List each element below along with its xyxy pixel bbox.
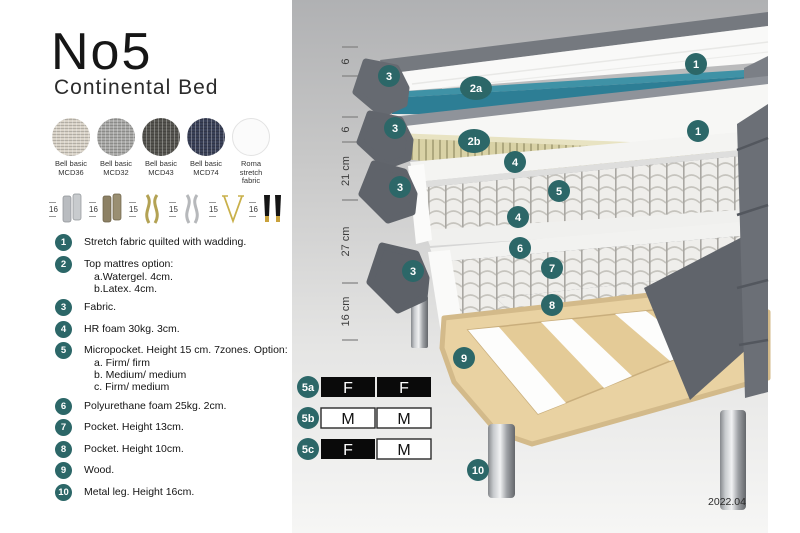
svg-text:3: 3 — [397, 182, 403, 194]
fabric-swatch-image — [97, 118, 135, 156]
fabric-swatch-image — [142, 118, 180, 156]
svg-text:F: F — [399, 380, 409, 397]
leg-option: 15 — [129, 186, 166, 232]
fabric-swatch-label: Bell basicMCD43 — [140, 160, 182, 177]
fabric-swatch: Bell basicMCD32 — [95, 118, 137, 186]
item-number-badge: 6 — [55, 398, 72, 415]
fabric-swatch: Bell basicMCD36 — [50, 118, 92, 186]
firmness-table: 5a F F 5b M M 5c — [297, 376, 431, 460]
bed-diagram: 6 6 21 cm 27 cm 16 cm — [292, 0, 800, 533]
dim-label-27cm: 27 cm — [340, 227, 352, 257]
metal-leg-right — [720, 410, 746, 510]
svg-text:7: 7 — [549, 263, 555, 275]
svg-text:4: 4 — [515, 212, 522, 224]
fabric-swatch-image — [187, 118, 225, 156]
list-item: 1 Stretch fabric quilted with wadding. — [55, 234, 290, 251]
leg-option: 16 — [89, 186, 126, 232]
leg-hairpin-gold-icon — [220, 193, 246, 225]
svg-text:1: 1 — [695, 126, 701, 138]
svg-text:9: 9 — [461, 353, 467, 365]
product-sheet: No5 Continental Bed Bell basicMCD36 Bell… — [0, 0, 800, 533]
page-title: No5 — [51, 22, 152, 82]
leg-option: 16 — [49, 186, 86, 232]
svg-text:3: 3 — [392, 123, 398, 135]
fabric-swatch-label: Bell basicMCD74 — [185, 160, 227, 177]
item-number-badge: 2 — [55, 256, 72, 273]
list-item: 8 Pocket. Height 10cm. — [55, 441, 290, 458]
svg-text:M: M — [397, 442, 410, 459]
leg-cylinder-bronze-icon — [100, 193, 126, 225]
svg-text:2a: 2a — [470, 83, 483, 95]
item-number-badge: 8 — [55, 441, 72, 458]
spec-list: 1 Stretch fabric quilted with wadding. 2… — [55, 234, 290, 505]
metal-leg-front — [488, 424, 515, 498]
svg-text:3: 3 — [386, 71, 392, 83]
info-panel: No5 Continental Bed Bell basicMCD36 Bell… — [0, 0, 292, 533]
dim-label-6b: 6 — [340, 126, 352, 132]
fabric-swatch: Bell basicMCD74 — [185, 118, 227, 186]
list-item: 5 Micropocket. Height 15 cm. 7zones. Opt… — [55, 342, 290, 393]
svg-text:3: 3 — [410, 266, 416, 278]
leg-cylinder-silver-icon — [60, 193, 86, 225]
svg-text:F: F — [343, 380, 353, 397]
svg-text:5c: 5c — [302, 444, 314, 456]
item-number-badge: 4 — [55, 321, 72, 338]
leg-option: 15 — [169, 186, 206, 232]
list-item: 10 Metal leg. Height 16cm. — [55, 484, 290, 501]
list-item: 6 Polyurethane foam 25kg. 2cm. — [55, 398, 290, 415]
svg-text:F: F — [343, 442, 353, 459]
fabric-swatch: Romastretch fabric — [230, 118, 272, 186]
dim-label-21cm: 21 cm — [340, 156, 352, 186]
item-number-badge: 3 — [55, 299, 72, 316]
page-subtitle: Continental Bed — [54, 76, 218, 100]
svg-text:M: M — [341, 411, 354, 428]
item-number-badge: 10 — [55, 484, 72, 501]
leg-twisted-gold-icon — [140, 193, 166, 225]
fabric-swatches: Bell basicMCD36 Bell basicMCD32 Bell bas… — [50, 118, 272, 186]
fabric-swatch-label: Bell basicMCD32 — [95, 160, 137, 177]
svg-text:5a: 5a — [302, 382, 315, 394]
item-number-badge: 1 — [55, 234, 72, 251]
leg-twisted-silver-icon — [180, 193, 206, 225]
fabric-swatch: Bell basicMCD43 — [140, 118, 182, 186]
fabric-swatch-image — [52, 118, 90, 156]
fabric-swatch-label: Romastretch fabric — [230, 160, 272, 186]
item-number-badge: 9 — [55, 462, 72, 479]
svg-text:10: 10 — [472, 465, 484, 477]
leg-option: 15 — [209, 186, 246, 232]
fabric-swatch-image — [232, 118, 270, 156]
bed-exploded-view: 6 6 21 cm 27 cm 16 cm — [292, 0, 800, 533]
svg-text:M: M — [397, 411, 410, 428]
list-item: 9 Wood. — [55, 462, 290, 479]
svg-text:2b: 2b — [468, 136, 481, 148]
leg-option: 16 — [249, 186, 286, 232]
version-label: 2022.04 — [708, 496, 746, 508]
list-item: 7 Pocket. Height 13cm. — [55, 419, 290, 436]
list-item: 4 HR foam 30kg. 3cm. — [55, 321, 290, 338]
list-item: 2 Top mattres option: a.Watergel. 4cm. b… — [55, 256, 290, 295]
svg-text:6: 6 — [517, 243, 523, 255]
dim-label-6a: 6 — [340, 58, 352, 64]
svg-text:1: 1 — [693, 59, 699, 71]
svg-text:5: 5 — [556, 186, 562, 198]
list-item: 3 Fabric. — [55, 299, 290, 316]
item-number-badge: 7 — [55, 419, 72, 436]
fabric-swatch-label: Bell basicMCD36 — [50, 160, 92, 177]
item-number-badge: 5 — [55, 342, 72, 359]
svg-text:5b: 5b — [302, 413, 315, 425]
leg-tapered-black-gold-icon — [260, 193, 286, 225]
svg-text:8: 8 — [549, 300, 555, 312]
dim-label-16cm: 16 cm — [340, 297, 352, 327]
leg-options: 16 16 15 15 — [49, 186, 286, 232]
svg-text:4: 4 — [512, 157, 519, 169]
